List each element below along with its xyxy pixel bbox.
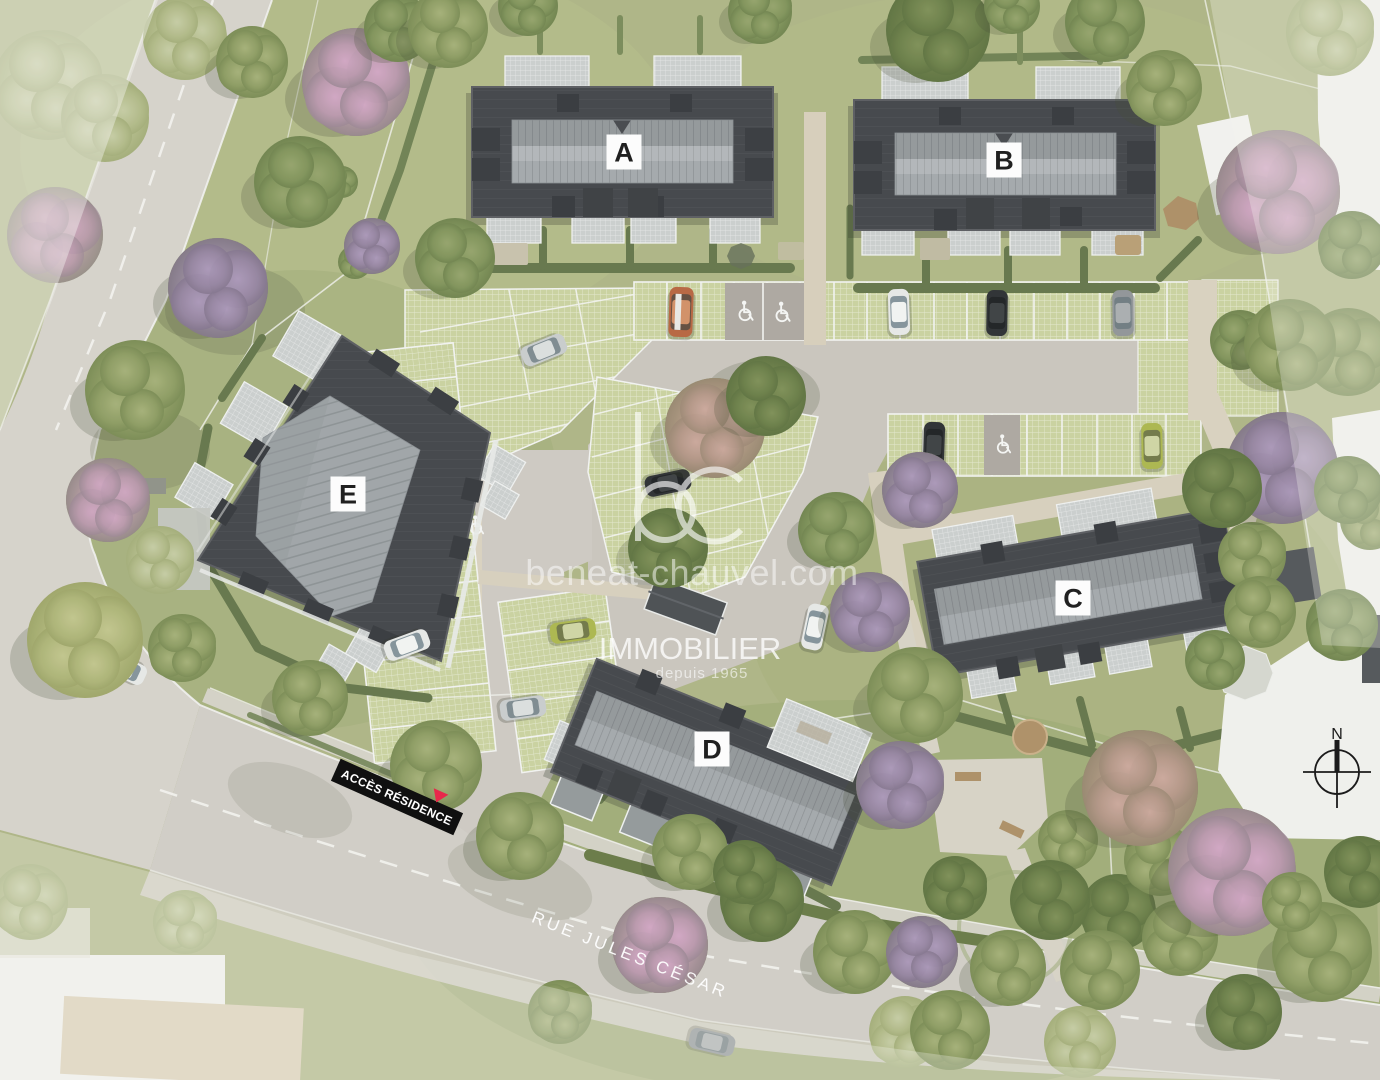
svg-text:N: N: [1331, 726, 1343, 743]
svg-text:IMMOBILIER: IMMOBILIER: [599, 631, 782, 666]
svg-text:depuis 1965: depuis 1965: [656, 665, 749, 682]
svg-text:beneat-chauvel.com: beneat-chauvel.com: [525, 552, 858, 593]
